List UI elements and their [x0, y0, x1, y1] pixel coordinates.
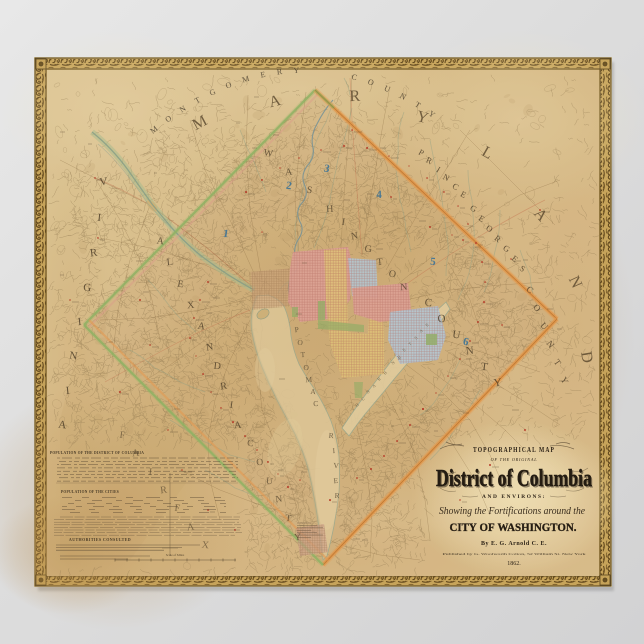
svg-text:D: D [213, 361, 221, 373]
svg-text:M: M [305, 375, 313, 384]
svg-text:1862.: 1862. [507, 561, 521, 567]
svg-text:OF THE ORIGINAL: OF THE ORIGINAL [491, 457, 538, 462]
svg-text:V: V [99, 176, 109, 189]
svg-text:G: G [364, 244, 372, 256]
svg-text:TOPOGRAPHICAL MAP: TOPOGRAPHICAL MAP [473, 446, 555, 454]
svg-text:R: R [328, 431, 334, 440]
svg-text:O: O [256, 458, 264, 469]
svg-text:Showing the Fortifications aro: Showing the Fortifications around the [439, 506, 585, 517]
svg-text:POPULATION OF THE CITIES: POPULATION OF THE CITIES [61, 490, 119, 494]
svg-text:T: T [300, 350, 305, 359]
svg-text:N: N [205, 342, 214, 354]
svg-text:L: L [166, 257, 173, 269]
svg-text:N: N [350, 231, 359, 243]
svg-text:AUTHORITIES CONSULTED: AUTHORITIES CONSULTED [69, 537, 131, 542]
svg-text:A: A [310, 387, 316, 396]
svg-text:By E. G. Arnold C. E.: By E. G. Arnold C. E. [481, 541, 547, 547]
svg-text:R: R [349, 88, 361, 105]
svg-text:N: N [69, 350, 79, 363]
svg-text:4: 4 [376, 189, 382, 201]
svg-text:District of Columbia: District of Columbia [437, 468, 593, 494]
svg-text:U: U [452, 329, 462, 342]
svg-text:R: R [334, 491, 339, 500]
svg-text:T: T [376, 257, 383, 268]
svg-text:G: G [83, 282, 92, 295]
svg-text:Y: Y [294, 533, 302, 544]
svg-text:N: N [465, 345, 474, 358]
svg-text:O: O [437, 313, 446, 326]
svg-text:C: C [246, 439, 254, 450]
svg-text:Y: Y [493, 377, 502, 390]
svg-text:C: C [313, 399, 319, 408]
svg-text:H: H [326, 204, 334, 215]
svg-text:N: N [400, 282, 408, 293]
svg-text:Scale of Miles: Scale of Miles [166, 553, 185, 557]
svg-text:AND ENVIRONS:: AND ENVIRONS: [482, 494, 546, 500]
svg-text:POPULATION OF THE DISTRICT OF: POPULATION OF THE DISTRICT OF COLUMBIA [50, 451, 144, 455]
svg-text:N: N [275, 495, 283, 506]
svg-text:C: C [424, 297, 433, 310]
svg-text:A: A [58, 419, 67, 432]
svg-text:CITY OF WASHINGTON.: CITY OF WASHINGTON. [450, 522, 577, 534]
